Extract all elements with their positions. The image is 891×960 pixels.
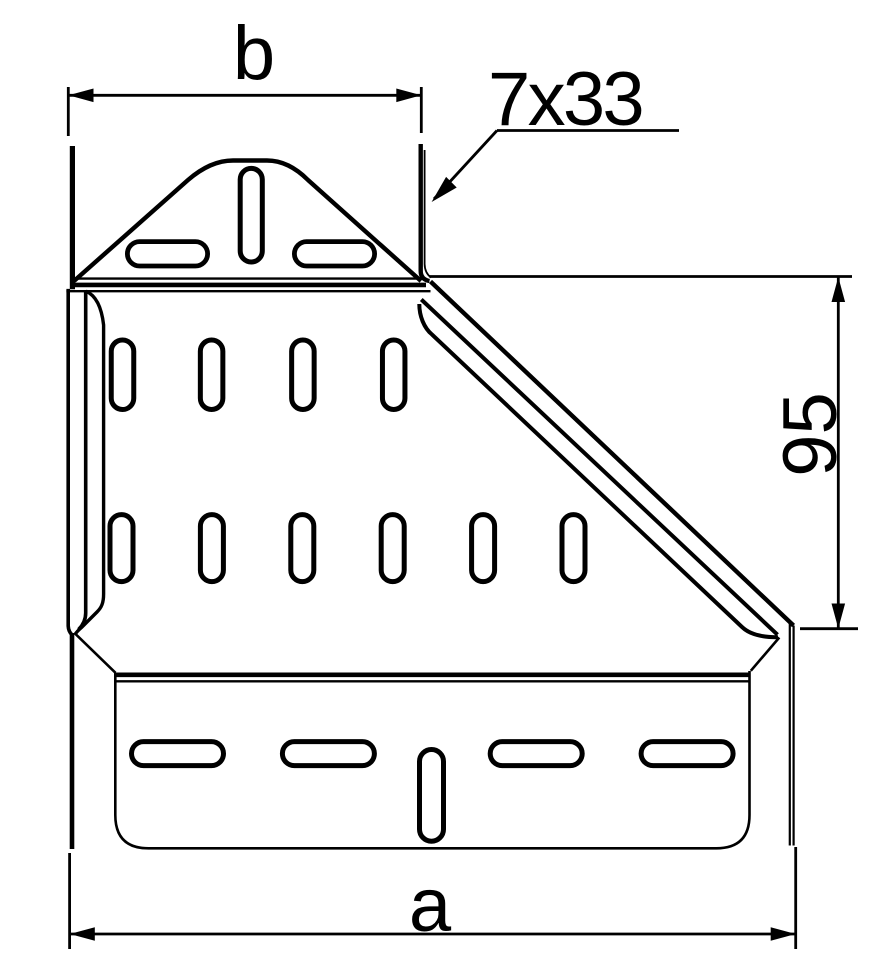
svg-text:7x33: 7x33 [488,57,642,142]
svg-text:b: b [233,11,275,96]
svg-text:95: 95 [768,392,853,477]
svg-text:a: a [409,863,452,948]
